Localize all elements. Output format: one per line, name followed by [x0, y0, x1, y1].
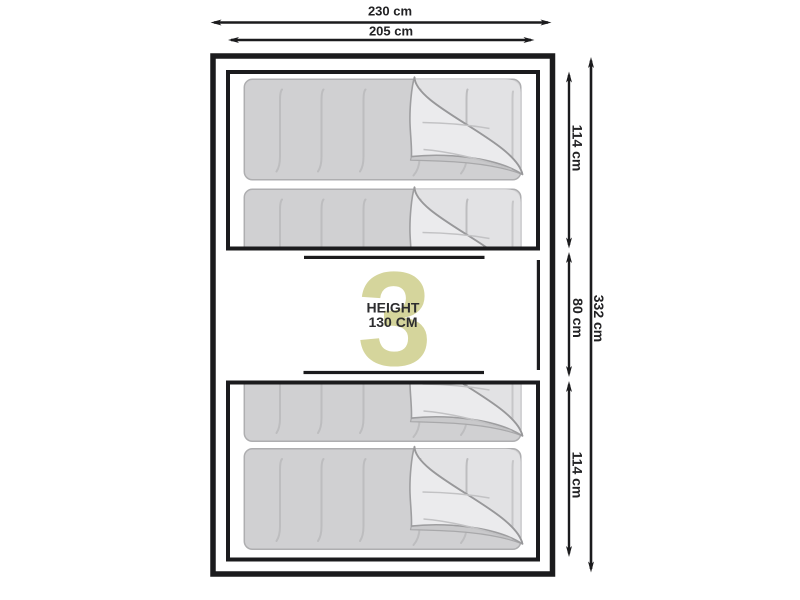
- svg-text:130 CM: 130 CM: [368, 314, 417, 330]
- svg-text:205 cm: 205 cm: [369, 24, 413, 39]
- svg-text:114 cm: 114 cm: [569, 125, 585, 172]
- svg-text:230 cm: 230 cm: [368, 4, 412, 19]
- svg-text:80 cm: 80 cm: [570, 298, 586, 338]
- svg-text:332 cm: 332 cm: [591, 295, 607, 342]
- svg-text:114 cm: 114 cm: [569, 452, 585, 499]
